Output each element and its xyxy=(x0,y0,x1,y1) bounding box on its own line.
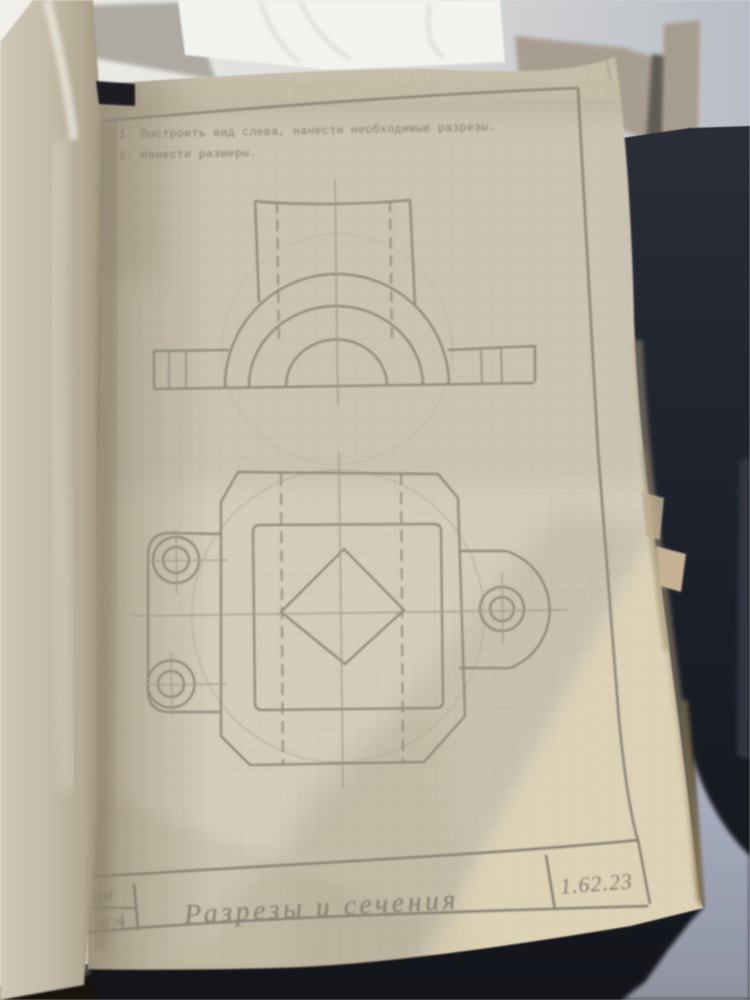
svg-text:ЧГ №: ЧГ № xyxy=(98,916,126,930)
